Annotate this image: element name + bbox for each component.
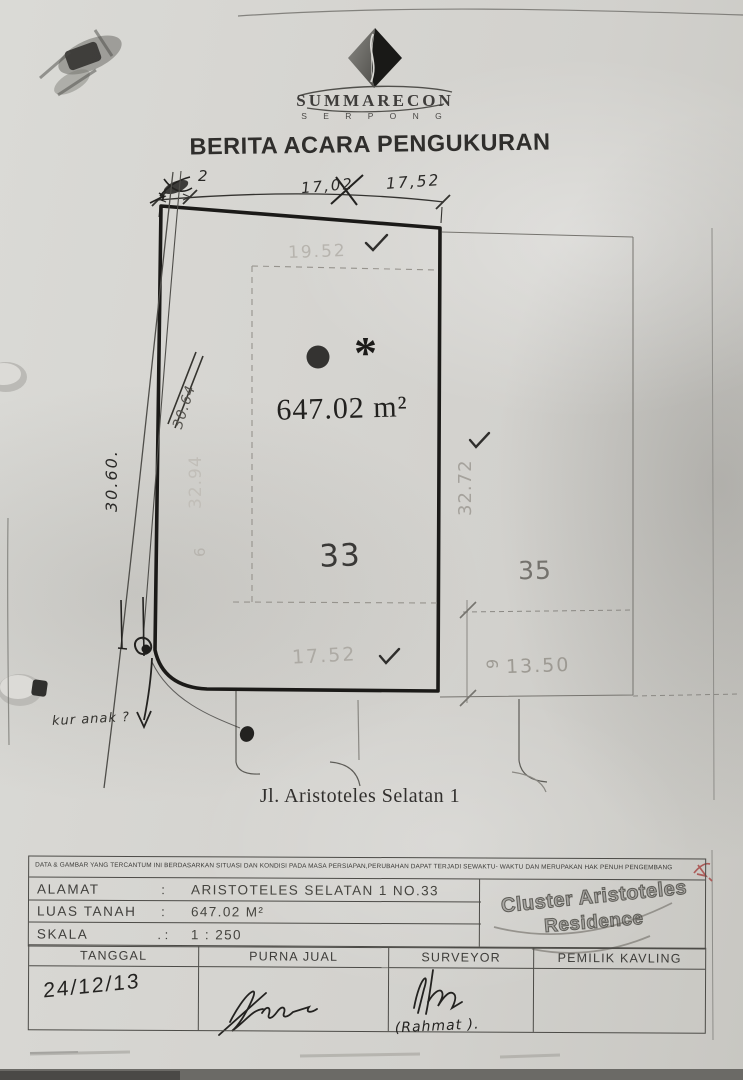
disclaimer-row: DATA & GAMBAR YANG TERCANTUM INI BERDASA… [29,857,705,881]
brand-name: SUMMARECON [270,91,480,111]
neighbor-plot-number: 35 [495,555,575,585]
tape-smudge [40,27,127,99]
pencil-smudges [30,1052,560,1057]
skala-value: 1 : 250 [177,927,242,942]
header-surveyor: SURVEYOR [389,947,534,969]
paper-edge-line [712,228,714,1040]
handwritten-dim-new: 17,52 [385,171,440,193]
bottom-dim: 17.52 [291,643,356,668]
right-dim: 32.72 [455,459,476,516]
stamp-cell: Cluster Aristoteles Residence [479,879,705,946]
neighbor-depth-dim: 9 [483,659,502,669]
cell-tanggal: 24/12/13 [29,966,199,1030]
handwritten-date: 24/12/13 [43,970,140,1004]
alamat-value: ARISTOTELES SELATAN 1 NO.33 [177,882,439,898]
top-setback-dim: 19.52 [288,241,347,263]
info-row-luas: LUAS TANAH : 647.02 M² [29,901,481,925]
signoff-table: TANGGAL PURNA JUAL SURVEYOR PEMILIK KAVL… [28,944,706,1034]
punch-hole-top [0,362,27,392]
scanned-survey-document: SUMMARECON S E R P O N G BERITA ACARA PE… [0,0,743,1080]
scan-bottom-corner [0,1071,180,1080]
cell-surveyor-signature: (Rahmat ). [389,968,534,1032]
disclaimer-text: DATA & GAMBAR YANG TERCANTUM INI BERDASA… [35,862,672,872]
scan-crease-line [238,9,743,16]
left-setback-sub: 6 [191,547,209,557]
area-label: 647.02 m² [237,389,448,428]
left-handwritten-dim: 30.60. [102,449,121,512]
punch-hole-bottom [0,674,48,706]
neighbor-width-dim: 13.50 [506,654,571,678]
skala-label: SKALA [29,926,149,942]
handwritten-corner-note: 2 [198,167,208,185]
plot-33-boundary [155,206,440,691]
alamat-label: ALAMAT [29,881,149,897]
luas-sep: : [149,904,177,919]
skala-sep: . : [149,927,177,942]
left-setback-dim: 32.94 [186,455,206,509]
fold-line [8,518,9,745]
alamat-sep: : [149,882,177,897]
survey-point-dot [307,346,330,369]
street-label: Jl. Aristoteles Selatan 1 [210,785,510,808]
info-table: DATA & GAMBAR YANG TERCANTUM INI BERDASA… [28,856,706,950]
header-pemilik-kavling: PEMILIK KAVLING [534,948,705,970]
luas-label: LUAS TANAH [29,904,149,920]
header-purna-jual: PURNA JUAL [199,946,389,968]
header-tanggal: TANGGAL [29,945,199,967]
asterisk-mark: * [354,326,377,379]
check-marks [366,235,489,663]
cell-purna-jual-signature [199,967,389,1031]
plot-number: 33 [299,537,380,576]
cell-pemilik-kavling [534,969,705,1033]
brand-subtitle: S E R P O N G [270,111,480,121]
street-frontage-curves [236,691,547,792]
info-row-skala: SKALA . : 1 : 250 [29,923,481,947]
luas-value: 647.02 M² [177,904,264,919]
plot-35-linework [440,232,740,706]
info-row-alamat: ALAMAT : ARISTOTELES SELATAN 1 NO.33 [29,878,481,903]
